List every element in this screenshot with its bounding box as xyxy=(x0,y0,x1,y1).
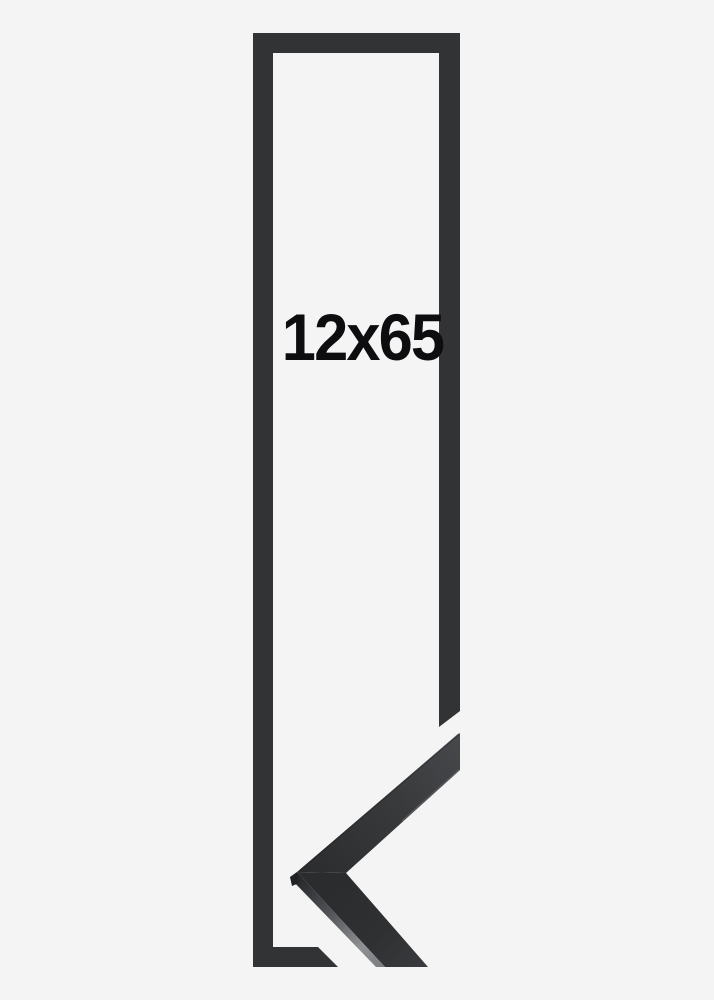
corner-outer-edge-line xyxy=(300,734,459,871)
frame-illustration xyxy=(0,0,714,1000)
frame-corner-sample-photo xyxy=(290,733,460,967)
frame-size-label: 12x65 xyxy=(282,304,436,370)
frame-size-product-image: 12x65 xyxy=(0,0,714,1000)
